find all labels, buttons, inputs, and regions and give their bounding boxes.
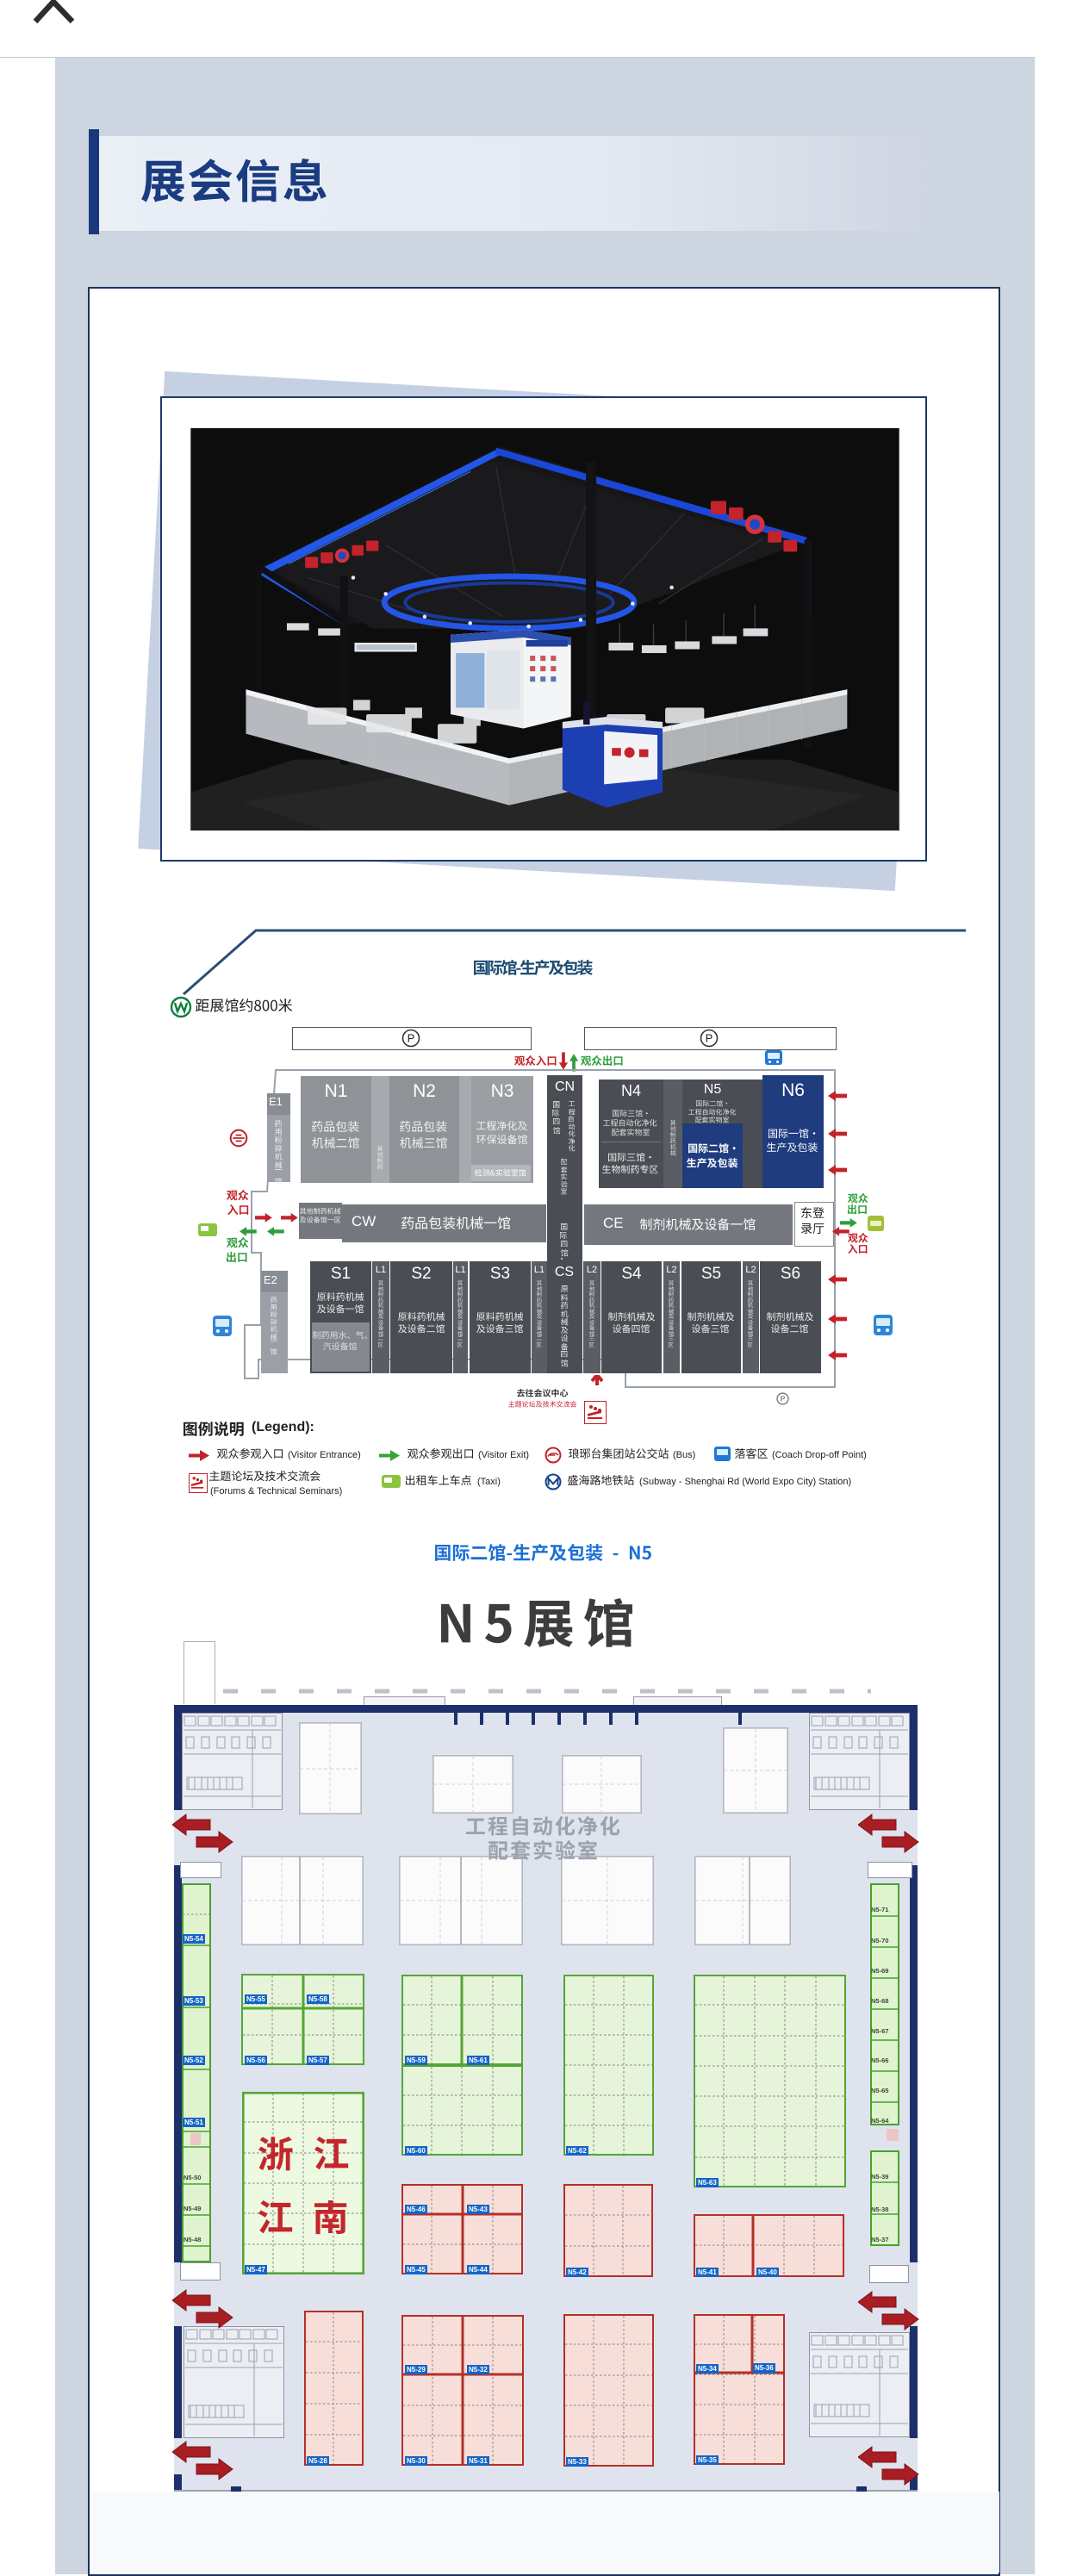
- svg-text:P: P: [706, 1032, 713, 1045]
- svg-text:P: P: [781, 1396, 786, 1403]
- svg-text:P: P: [408, 1032, 415, 1045]
